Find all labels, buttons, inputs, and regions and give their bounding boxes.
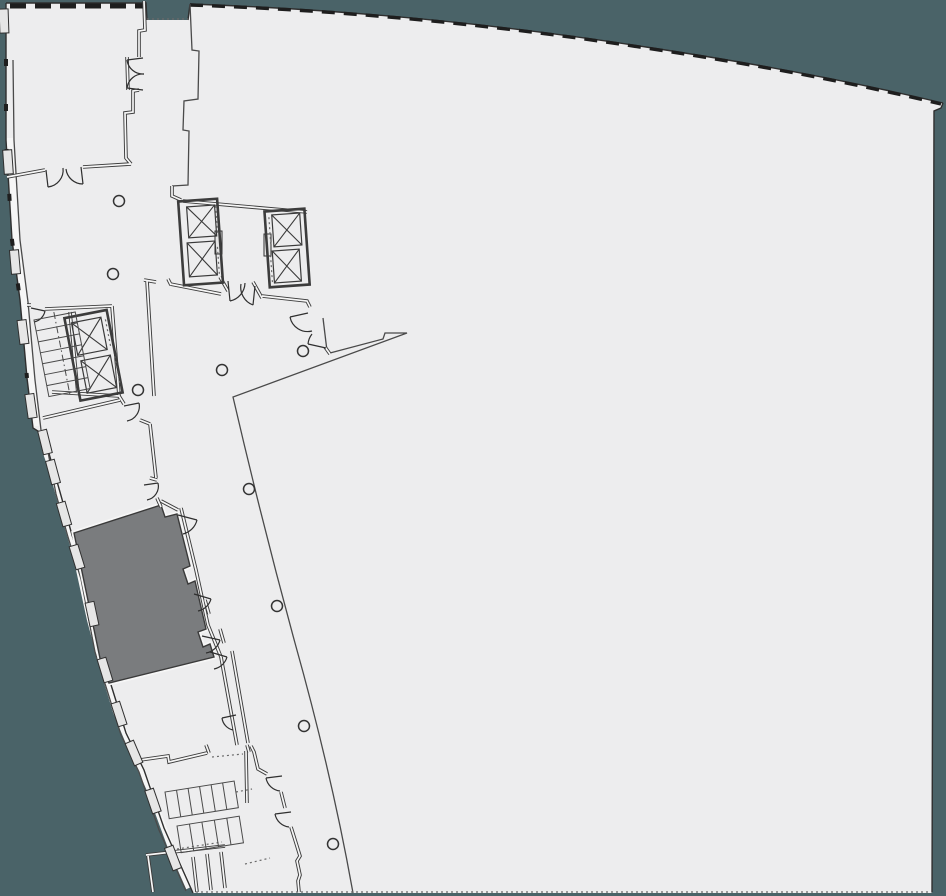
column-3 [133, 385, 144, 396]
column-8 [299, 721, 310, 732]
column-2 [108, 269, 119, 280]
floor-plan-stage [0, 0, 946, 896]
floor-plan-svg [0, 0, 946, 896]
facade-panel-3 [9, 250, 20, 275]
facade-panel-rect [9, 250, 20, 275]
column-9 [328, 839, 339, 850]
column-7 [272, 601, 283, 612]
facade-panel-rect [3, 150, 14, 175]
facade-panel-2 [3, 150, 14, 175]
column-1 [114, 196, 125, 207]
facade-panel-1 [0, 9, 9, 33]
column-4 [217, 365, 228, 376]
column-5 [298, 346, 309, 357]
column-6 [244, 484, 255, 495]
facade-panel-rect [0, 9, 9, 33]
